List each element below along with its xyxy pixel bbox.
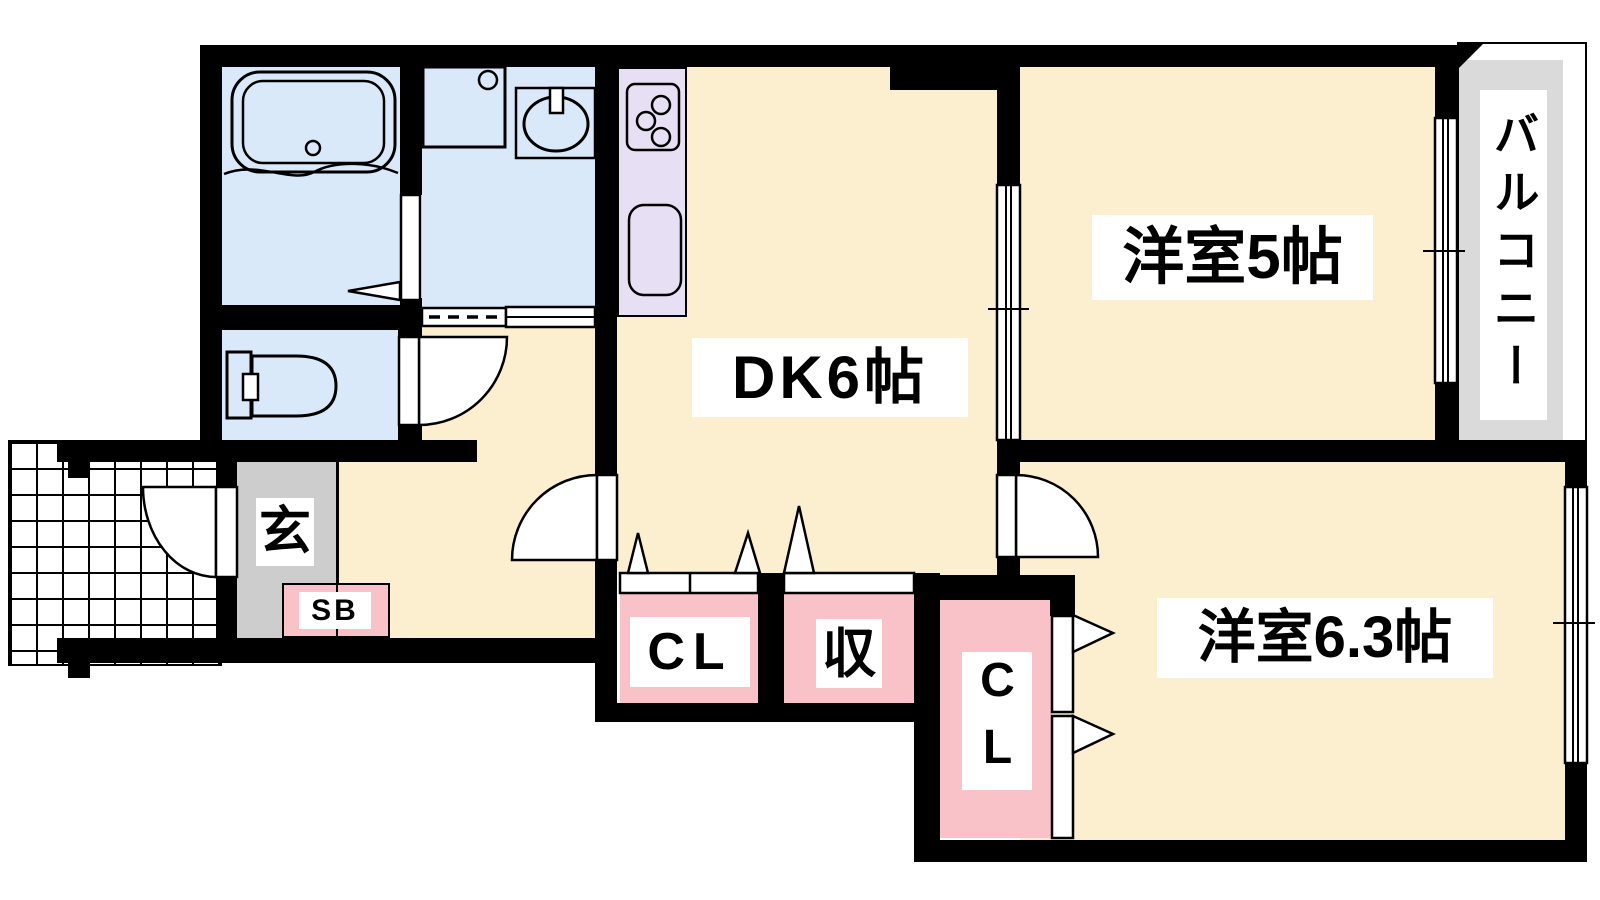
wall-toilet-right-upper: [398, 330, 422, 337]
wall-west5-right-lower: [1435, 383, 1457, 440]
washroom-floor: [422, 67, 595, 308]
western5-label: 洋室5帖: [1092, 215, 1373, 300]
wall-porch-stub-top: [68, 462, 90, 478]
wall-kitchen-left-lower: [595, 558, 617, 722]
wall-entry-door-upper: [216, 442, 237, 487]
wall-porch-top: [57, 442, 237, 462]
hall-dk-door-leaf: [597, 475, 617, 560]
wall-toilet-right-lower: [398, 425, 422, 440]
bathroom-floor: [222, 67, 400, 307]
wall-cl-storage-divider: [758, 573, 784, 705]
dk-label: DK6帖: [692, 338, 968, 417]
wall-bedroom-closet-left: [914, 573, 940, 862]
storage-label: 収: [816, 619, 882, 688]
wall-west5-west63-divider: [997, 440, 1587, 462]
wall-dk-west5-upper: [997, 67, 1020, 185]
wall-porch-stub-bottom: [68, 663, 90, 678]
wall-bedroom-closet-top: [940, 575, 1075, 600]
wall-bath-toilet: [200, 305, 422, 330]
hall-closet-label: CL: [630, 617, 750, 687]
wall-entry-door-lower: [216, 577, 237, 640]
western63-label: 洋室6.3帖: [1157, 598, 1493, 678]
wall-west63-right-upper: [1565, 458, 1587, 487]
wall-bottom-right: [914, 840, 1587, 862]
wall-toilet-bottom: [200, 440, 477, 462]
balcony-label: バルコニー: [1480, 90, 1547, 420]
wall-left: [200, 45, 222, 462]
wall-kitchen-left-upper: [595, 45, 617, 475]
wall-dk-west63-lower: [997, 555, 1020, 577]
washroom-sliding-door: [422, 307, 595, 327]
wall-west5-right-upper: [1435, 45, 1457, 118]
toilet-door-leaf: [399, 337, 419, 425]
wall-west63-right-lower: [1565, 763, 1587, 840]
wall-bath-wash-upper: [400, 67, 422, 195]
bedroom-closet-label: CL: [962, 652, 1032, 790]
bathroom-door-leaf: [401, 195, 420, 300]
entrance-porch-tiles: [8, 440, 222, 666]
floor-plan: DK6帖 洋室5帖 洋室6.3帖 バルコニー 玄 SB CL 収 CL: [0, 0, 1600, 900]
shoe-box-label: SB: [299, 592, 371, 629]
wall-hall-bottom: [57, 638, 617, 663]
wall-closet-bottom: [595, 703, 940, 722]
toilet-floor: [222, 330, 400, 440]
kitchen-counter: [617, 67, 687, 317]
wall-bedroom-closet-corner: [1050, 600, 1075, 616]
wall-dk-west63-upper: [997, 462, 1020, 475]
wall-top: [200, 45, 1435, 67]
entrance-label: 玄: [256, 498, 314, 566]
